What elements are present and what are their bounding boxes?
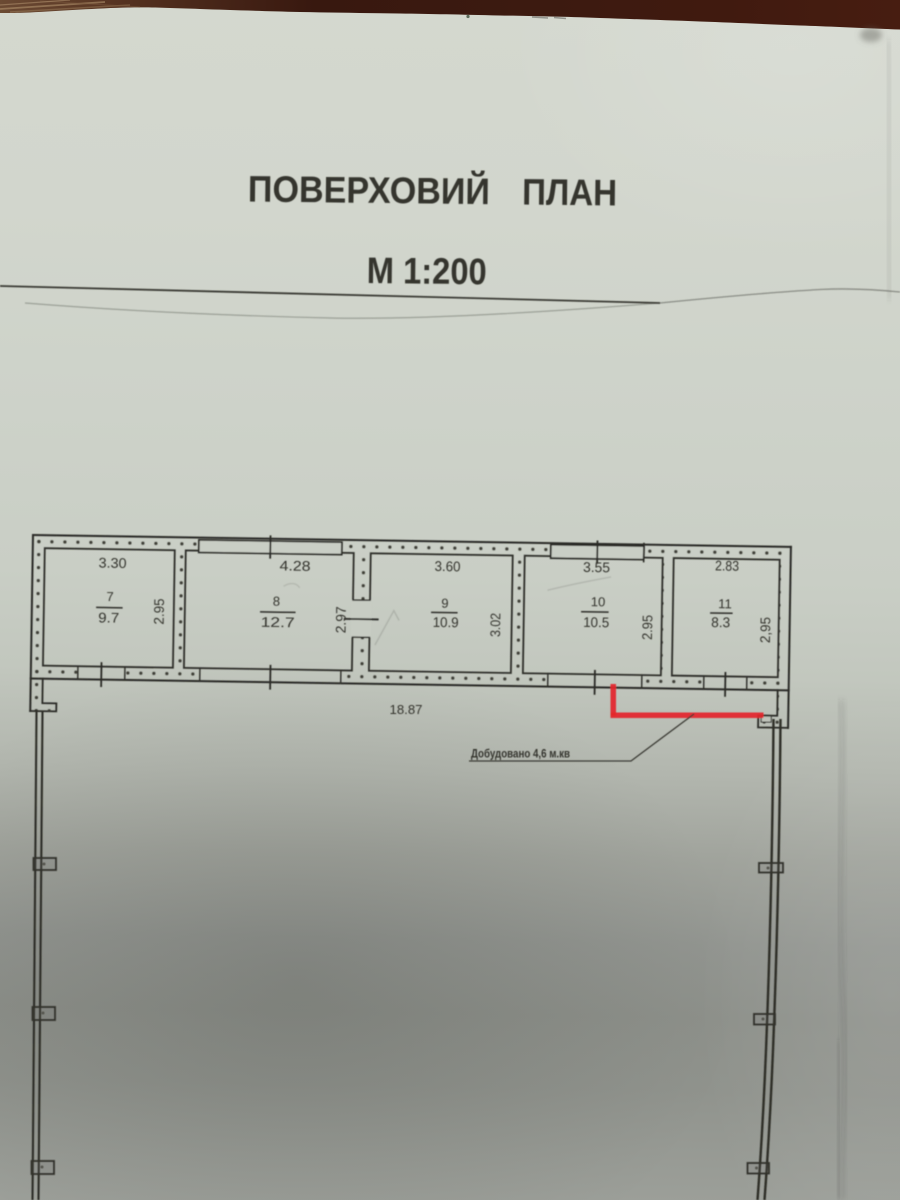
svg-text:10.5: 10.5 <box>583 614 609 630</box>
svg-text:ПЛАН: ПЛАН <box>522 171 617 213</box>
svg-text:12.7: 12.7 <box>261 614 296 631</box>
svg-text:8.3: 8.3 <box>711 614 730 630</box>
svg-text:М 1:200: М 1:200 <box>367 250 487 292</box>
svg-text:10: 10 <box>591 594 606 609</box>
svg-text:3.30: 3.30 <box>98 555 126 571</box>
svg-text:Добудовано 4,6 м.кв: Добудовано 4,6 м.кв <box>471 749 570 761</box>
svg-text:ПОВЕРХОВИЙ: ПОВЕРХОВИЙ <box>248 167 490 212</box>
svg-text:2,95: 2,95 <box>757 617 773 643</box>
svg-text:9.7: 9.7 <box>98 609 119 625</box>
svg-text:3.60: 3.60 <box>434 558 460 574</box>
svg-text:7: 7 <box>106 589 113 604</box>
svg-text:3.02: 3.02 <box>487 613 503 637</box>
svg-text:10.9: 10.9 <box>433 614 459 630</box>
svg-text:2.95: 2.95 <box>151 598 167 624</box>
svg-text:8: 8 <box>273 594 280 609</box>
svg-text:2.95: 2.95 <box>639 615 655 640</box>
svg-text:2.97: 2.97 <box>332 606 348 633</box>
svg-text:4.28: 4.28 <box>279 557 310 573</box>
svg-text:3.55: 3.55 <box>583 559 610 575</box>
svg-text:18.87: 18.87 <box>390 702 423 717</box>
svg-text:2.83: 2.83 <box>715 557 739 573</box>
svg-text:11: 11 <box>718 596 732 611</box>
svg-text:9: 9 <box>441 596 448 611</box>
